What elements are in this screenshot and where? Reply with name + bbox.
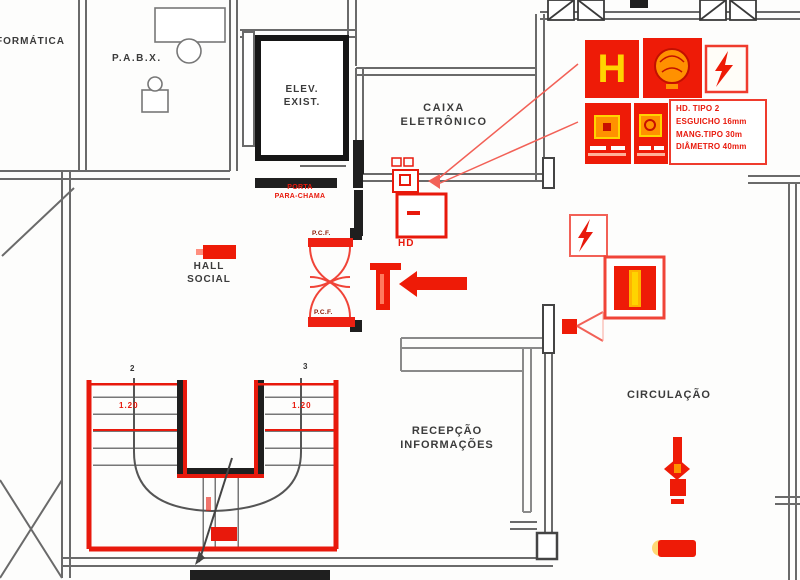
stair-num-right: 3	[303, 362, 308, 372]
electrical-panel-icon	[570, 215, 607, 256]
stair-dim-left: 1.20	[119, 401, 139, 411]
floor-plan-drawing	[0, 0, 800, 580]
fire-extinguisher-icon	[370, 263, 401, 310]
hydrant-riser-icon	[664, 437, 690, 504]
door-leaf-top	[308, 238, 353, 247]
chair	[177, 39, 201, 63]
fire-extinguisher-wall-icon	[605, 257, 664, 318]
room-label-hall: HALL SOCIAL	[178, 261, 240, 286]
stair-num-left: 2	[130, 364, 135, 374]
manual-call-point-icon	[585, 103, 631, 164]
stool	[148, 77, 162, 91]
room-label-elev: ELEV. EXIST.	[258, 84, 346, 109]
stair-path-curve	[134, 378, 301, 511]
siren-icon	[634, 103, 668, 164]
door-leaf-bottom	[308, 317, 355, 327]
direction-triangle-icon	[562, 312, 603, 341]
room-label-informatica: INFORMÁTICA	[0, 36, 65, 49]
room-label-circulacao: CIRCULAÇÃO	[627, 389, 711, 403]
direction-arrow-icon	[399, 271, 467, 297]
legend-spec-text: HD. TIPO 2 ESGUICHO 16mm MANG.TIPO 30m D…	[676, 103, 764, 154]
electrical-hazard-icon	[706, 46, 747, 92]
fire-door-note: PORTA PARA-CHAMA	[258, 184, 342, 202]
exit-arrow-icon	[211, 527, 237, 541]
desk	[155, 8, 225, 42]
hydrant-box	[397, 194, 446, 237]
floor-marker-icon	[652, 540, 696, 557]
hydrant-legend-letter: H	[585, 40, 639, 98]
room-label-recepcao: RECEPÇÃO INFORMAÇÕES	[384, 425, 510, 453]
hydrant-label: HD	[398, 238, 414, 251]
room-label-pabx: P.A.B.X.	[112, 53, 162, 66]
hall-sign-icon	[196, 245, 236, 259]
corner-diagonals	[0, 480, 62, 578]
hydrant-symbol-group	[392, 158, 446, 237]
door-label-pcf-top: P.C.F.	[312, 230, 331, 238]
floor-plan: INFORMÁTICA P.A.B.X. ELEV. EXIST. CAIXA …	[0, 0, 800, 580]
door-label-pcf-bottom: P.C.F.	[314, 309, 333, 317]
structural-columns	[548, 0, 756, 20]
cabinet	[142, 90, 168, 112]
fire-alarm-bell-icon	[643, 38, 702, 98]
door-leaf-line	[2, 188, 74, 256]
door-jambs	[537, 158, 557, 559]
room-label-caixa: CAIXA ELETRÔNICO	[380, 102, 508, 130]
stair-dim-right: 1.20	[292, 401, 312, 411]
